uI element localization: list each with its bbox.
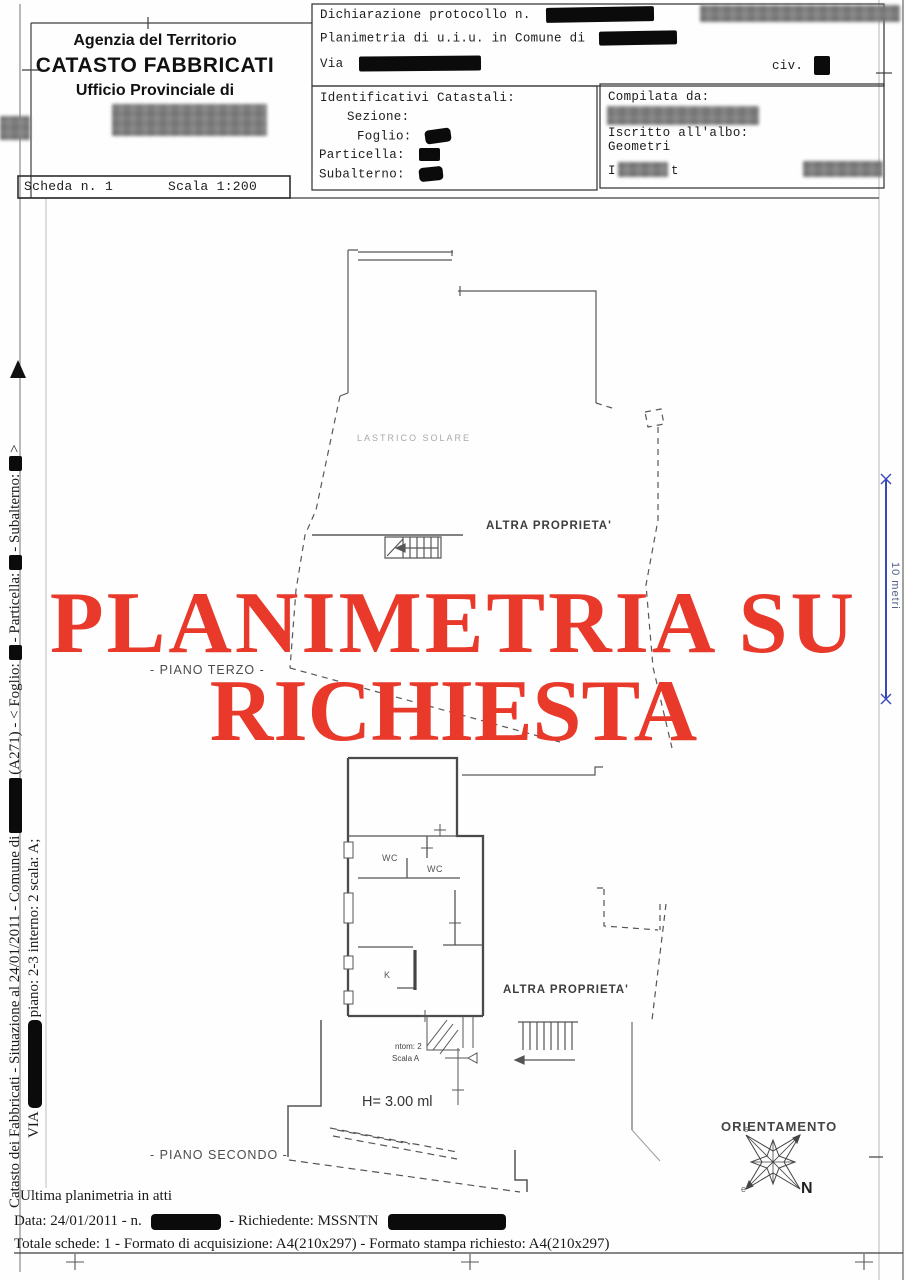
sidebar-rotated-text: Catasto dei Fabbricati - Situazione al 2… <box>6 363 44 1208</box>
redaction-footer-number <box>151 1214 221 1230</box>
footer-ultima: Ultima planimetria in atti <box>20 1188 172 1205</box>
sidebar-line2: VIApiano: 2-3 interno: 2 scala: A; <box>25 363 44 1208</box>
redaction-sidebar-via <box>28 1020 42 1108</box>
redaction-comune <box>599 30 677 45</box>
planimetria-line: Planimetria di u.i.u. in Comune di <box>320 31 677 45</box>
agency-office: Ufficio Provinciale di <box>40 82 270 100</box>
orientation-title: ORIENTAMENTO <box>721 1119 837 1134</box>
watermark-line1: PLANIMETRIA SU <box>0 580 907 668</box>
stair-note-line2: Scala A <box>392 1054 419 1063</box>
height-note: H= 3.00 ml <box>362 1094 433 1110</box>
cadastral-plan-page: Agenzia del Territorio CATASTO FABBRICAT… <box>0 0 907 1280</box>
civ-line: civ. <box>772 56 830 75</box>
civ-label: civ. <box>772 59 803 73</box>
altra-proprieta-lower-label: ALTRA PROPRIETA' <box>503 984 629 996</box>
piano-secondo-label: - PIANO SECONDO - <box>150 1148 288 1162</box>
lower-floorplan <box>288 758 666 1192</box>
albo-value: Geometri <box>608 140 670 154</box>
protocol-label: Dichiarazione protocollo n. <box>320 8 531 22</box>
agency-name: Agenzia del Territorio <box>40 32 270 50</box>
redaction-sidebar-particella <box>9 555 22 570</box>
identificativi-title: Identificativi Catastali: <box>320 91 515 105</box>
compass-point-c: c <box>799 1123 804 1133</box>
redaction-street <box>359 55 481 71</box>
redaction-foglio <box>425 127 453 144</box>
registration-marks <box>66 1254 873 1270</box>
wc2-label: WC <box>427 864 443 874</box>
redaction-protocol-number <box>546 6 654 23</box>
redaction-firma-2 <box>803 161 883 177</box>
redaction-firma-1 <box>618 162 668 177</box>
stair-note-line1: ntom: 2 <box>395 1042 422 1051</box>
redaction-office-name <box>112 104 267 136</box>
redaction-civ-number <box>814 56 830 75</box>
footer-totale-line: Totale schede: 1 - Formato di acquisizio… <box>14 1236 610 1253</box>
albo-label: Iscritto all'albo: <box>608 126 748 140</box>
redaction-footer-richiedente <box>388 1214 506 1230</box>
compass-point-e: e <box>741 1184 746 1194</box>
sidebar-line1: Catasto dei Fabbricati - Situazione al 2… <box>6 363 25 1208</box>
agency-title: CATASTO FABBRICATI <box>30 54 280 78</box>
lastrico-solare-label: LASTRICO SOLARE <box>357 433 471 443</box>
redaction-compiler-name <box>607 106 759 125</box>
foglio-label: Foglio: <box>357 129 412 143</box>
compilata-label: Compilata da: <box>608 90 709 104</box>
redaction-sidebar-subalterno <box>9 456 22 471</box>
via-line: Via <box>320 56 481 71</box>
kitchen-label: K <box>384 970 390 980</box>
protocol-line: Dichiarazione protocollo n. <box>320 7 654 22</box>
redaction-protocol-extra <box>700 5 900 22</box>
particella-line: Particella: <box>319 148 440 162</box>
redaction-subalterno <box>418 166 443 182</box>
compass-rose-icon <box>746 1135 800 1189</box>
redaction-left-edge <box>0 116 30 140</box>
compass-north-label: N <box>801 1180 813 1198</box>
scheda-number: Scheda n. 1 <box>24 179 113 194</box>
compass-point-s: s <box>744 1124 749 1134</box>
redaction-particella <box>419 148 440 161</box>
particella-label: Particella: <box>319 148 405 162</box>
altra-proprieta-upper-label: ALTRA PROPRIETA' <box>486 520 612 532</box>
subalterno-label: Subalterno: <box>319 167 405 181</box>
redaction-sidebar-comune <box>9 778 22 833</box>
scale-value: Scala 1:200 <box>168 179 257 194</box>
watermark-line2: RICHIESTA <box>0 668 907 756</box>
sezione-label: Sezione: <box>347 110 409 124</box>
planimetria-label: Planimetria di u.i.u. in Comune di <box>320 31 585 45</box>
subalterno-line: Subalterno: <box>319 167 443 181</box>
wc1-label: WC <box>382 853 398 863</box>
foglio-line: Foglio: <box>357 129 451 143</box>
firma-right: t <box>671 164 679 178</box>
via-label: Via <box>320 57 343 71</box>
firma-left: I <box>608 164 616 178</box>
footer-data-line: Data: 24/01/2011 - n. - Richiedente: MSS… <box>14 1213 506 1230</box>
redaction-sidebar-foglio <box>9 645 22 660</box>
